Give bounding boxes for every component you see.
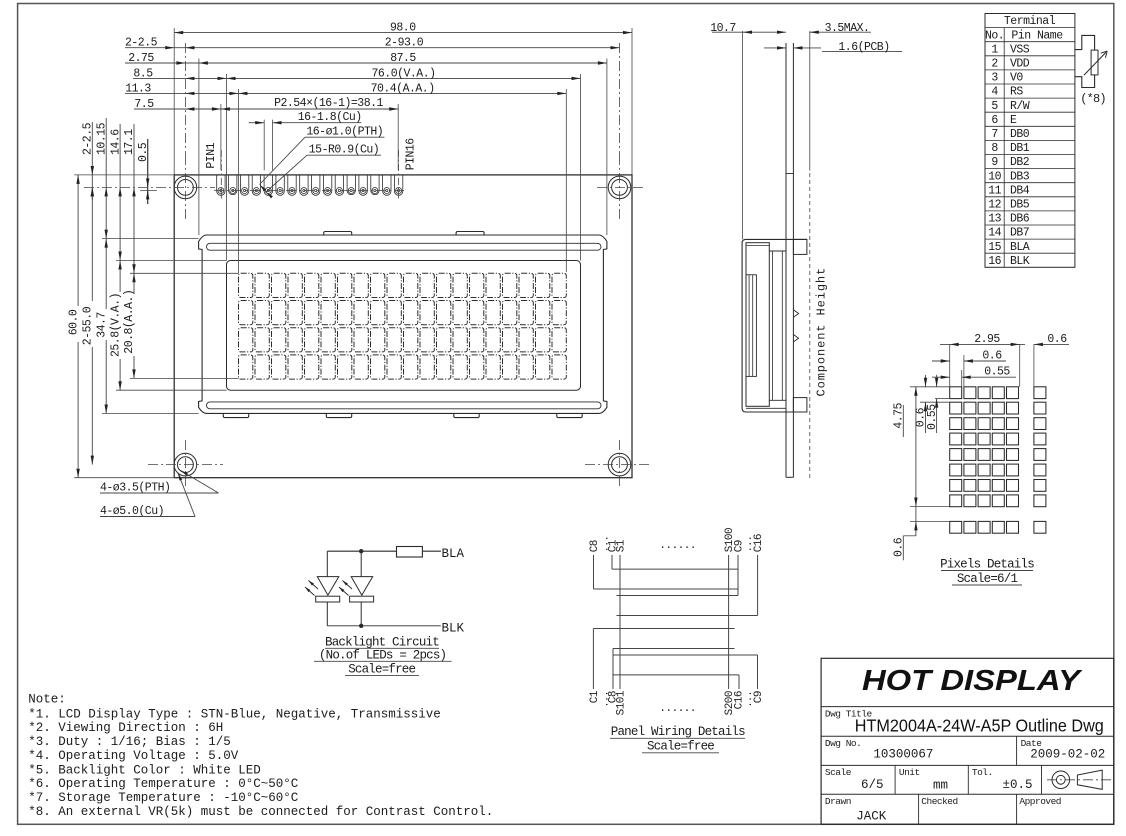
- svg-text:2-93.0: 2-93.0: [385, 37, 424, 50]
- svg-text:5: 5: [991, 100, 998, 113]
- svg-text:1.6(PCB): 1.6(PCB): [838, 41, 889, 54]
- svg-text:mm: mm: [933, 779, 948, 793]
- svg-text:VDD: VDD: [1010, 58, 1030, 71]
- svg-text:......: ......: [659, 703, 696, 715]
- svg-text:DB6: DB6: [1010, 213, 1030, 226]
- svg-text:*5. Backlight Color : White LE: *5. Backlight Color : White LED: [28, 763, 261, 777]
- svg-text:S1: S1: [616, 539, 628, 552]
- svg-text:34.7: 34.7: [95, 312, 108, 338]
- svg-text:16: 16: [988, 255, 1001, 268]
- svg-text:...: ...: [601, 536, 612, 553]
- svg-text:PIN1: PIN1: [205, 142, 218, 168]
- svg-text:*6. Operating Temperature : 0°: *6. Operating Temperature : 0°C~50°C: [28, 777, 298, 791]
- svg-text:0.6: 0.6: [1047, 333, 1067, 346]
- svg-text:BLA: BLA: [1010, 241, 1030, 254]
- svg-text:E: E: [1010, 114, 1017, 127]
- svg-text:2.75: 2.75: [128, 52, 154, 65]
- svg-text:98.0: 98.0: [390, 22, 416, 35]
- svg-text:*1. LCD Display Type : STN-Blu: *1. LCD Display Type : STN-Blue, Negativ…: [28, 707, 441, 721]
- svg-text:0.55: 0.55: [984, 366, 1010, 379]
- svg-text:20.8(A.A.): 20.8(A.A.): [123, 290, 136, 354]
- svg-text:Backlight Circuit: Backlight Circuit: [325, 636, 439, 650]
- svg-text:10.7: 10.7: [710, 22, 736, 35]
- svg-text:11.3: 11.3: [125, 82, 151, 95]
- svg-text:8.5: 8.5: [133, 67, 153, 80]
- svg-text:Checked: Checked: [921, 796, 957, 807]
- svg-text:Scale=6/1: Scale=6/1: [957, 572, 1018, 586]
- svg-text:2-55.0: 2-55.0: [82, 306, 95, 345]
- svg-text:*4. Operating Voltage : 5.0V: *4. Operating Voltage : 5.0V: [28, 749, 239, 763]
- svg-text:70.4(A.A.): 70.4(A.A.): [371, 82, 435, 95]
- svg-text:8: 8: [991, 142, 998, 155]
- svg-text:...: ...: [744, 691, 755, 708]
- svg-text:Note:: Note:: [28, 692, 66, 706]
- svg-text:DB2: DB2: [1010, 156, 1030, 169]
- svg-text:15-R0.9(Cu): 15-R0.9(Cu): [309, 144, 379, 157]
- svg-text:No.: No.: [985, 29, 1004, 42]
- svg-text:(*8): (*8): [1080, 92, 1106, 106]
- svg-text:7: 7: [991, 128, 997, 141]
- svg-text:Pixels Details: Pixels Details: [940, 557, 1034, 571]
- svg-text:......: ......: [659, 540, 696, 552]
- svg-text:DB0: DB0: [1010, 128, 1030, 141]
- svg-text:13: 13: [988, 213, 1001, 226]
- svg-text:12: 12: [988, 199, 1001, 212]
- svg-text:11: 11: [988, 184, 1001, 197]
- svg-text:Tol.: Tol.: [972, 767, 993, 778]
- svg-text:Unit: Unit: [899, 767, 920, 778]
- svg-text:0.6: 0.6: [893, 537, 906, 557]
- svg-text:DB3: DB3: [1010, 170, 1030, 183]
- svg-text:60.0: 60.0: [67, 309, 80, 335]
- svg-text:10: 10: [988, 170, 1001, 183]
- svg-text:Terminal: Terminal: [1004, 15, 1056, 28]
- svg-text:*3. Duty : 1/16; Bias : 1/5: *3. Duty : 1/16; Bias : 1/5: [28, 735, 231, 749]
- svg-text:14: 14: [988, 227, 1001, 240]
- svg-text:16-ø1.0(PTH): 16-ø1.0(PTH): [306, 126, 383, 139]
- svg-text:HOT DISPLAY: HOT DISPLAY: [862, 665, 1083, 697]
- svg-text:0.6: 0.6: [982, 350, 1002, 363]
- svg-text:Approved: Approved: [1019, 796, 1061, 807]
- svg-text:DB5: DB5: [1010, 199, 1030, 212]
- svg-text:1: 1: [991, 43, 998, 56]
- svg-text:C8: C8: [589, 540, 601, 552]
- svg-text:15: 15: [988, 241, 1001, 254]
- svg-text:DB4: DB4: [1010, 184, 1030, 197]
- svg-text:*7. Storage Temperature : -10°: *7. Storage Temperature : -10°C~60°C: [28, 791, 298, 805]
- svg-text:7.5: 7.5: [134, 98, 154, 111]
- svg-text:Panel Wiring Details: Panel Wiring Details: [611, 725, 745, 739]
- svg-text:4: 4: [991, 86, 998, 99]
- svg-text:R/W: R/W: [1010, 100, 1030, 113]
- svg-text:VSS: VSS: [1010, 43, 1030, 56]
- svg-text:...: ...: [601, 691, 612, 708]
- svg-text:Pin Name: Pin Name: [1011, 29, 1063, 42]
- svg-text:...: ...: [744, 536, 755, 553]
- svg-text:V0: V0: [1010, 72, 1023, 85]
- svg-text:Scale=free: Scale=free: [647, 740, 714, 754]
- svg-text:6: 6: [991, 114, 998, 127]
- svg-text:S101: S101: [616, 690, 628, 715]
- svg-text:*2. Viewing Direction : 6H: *2. Viewing Direction : 6H: [28, 721, 223, 735]
- svg-text:PIN16: PIN16: [404, 138, 417, 171]
- svg-text:DB1: DB1: [1010, 142, 1030, 155]
- svg-text:RS: RS: [1010, 86, 1023, 99]
- svg-text:Drawn: Drawn: [825, 796, 851, 807]
- svg-text:(No.of LEDs = 2pcs): (No.of LEDs = 2pcs): [319, 649, 446, 663]
- svg-text:JACK: JACK: [856, 810, 887, 824]
- svg-text:3.5MAX.: 3.5MAX.: [825, 22, 870, 35]
- svg-text:*8. An external VR(5k) must be: *8. An external VR(5k) must be connected…: [28, 805, 493, 819]
- svg-text:±0.5: ±0.5: [1002, 778, 1032, 792]
- svg-text:P2.54×(16-1)=38.1: P2.54×(16-1)=38.1: [274, 97, 383, 110]
- svg-text:25.8(V.A.): 25.8(V.A.): [109, 293, 122, 357]
- svg-text:BLK: BLK: [1010, 255, 1030, 268]
- svg-text:16-1.8(Cu): 16-1.8(Cu): [298, 111, 362, 124]
- svg-text:HTM2004A-24W-A5P Outline Dwg: HTM2004A-24W-A5P Outline Dwg: [855, 716, 1104, 736]
- svg-text:2.95: 2.95: [974, 333, 1000, 346]
- svg-text:3: 3: [991, 72, 998, 85]
- svg-text:87.5: 87.5: [390, 52, 416, 65]
- svg-text:2-2.5: 2-2.5: [125, 37, 158, 50]
- svg-text:9: 9: [991, 156, 998, 169]
- svg-text:BLK: BLK: [442, 622, 465, 636]
- svg-text:Dwg No.: Dwg No.: [825, 738, 861, 749]
- svg-text:Component Height: Component Height: [815, 267, 829, 397]
- svg-text:C1: C1: [589, 690, 601, 703]
- svg-text:6/5: 6/5: [861, 778, 884, 792]
- svg-text:Scale: Scale: [825, 767, 852, 778]
- svg-text:DB7: DB7: [1010, 227, 1029, 240]
- svg-text:10300067: 10300067: [873, 748, 933, 762]
- svg-text:BLA: BLA: [442, 547, 465, 561]
- svg-text:2009-02-02: 2009-02-02: [1030, 748, 1105, 762]
- svg-text:Scale=free: Scale=free: [348, 662, 415, 676]
- svg-text:76.0(V.A.): 76.0(V.A.): [371, 67, 435, 80]
- svg-text:2: 2: [991, 58, 998, 71]
